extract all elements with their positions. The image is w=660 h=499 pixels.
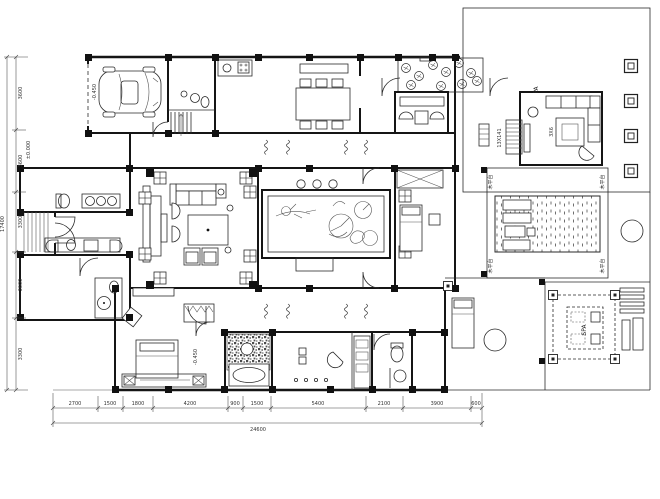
bench	[400, 97, 444, 106]
floor-plan-drawing: -0.450	[0, 0, 660, 499]
pedestal-sink	[241, 343, 253, 355]
spa-steps	[620, 288, 644, 350]
dimension-line-left: 3600 3600 3300 3600 3300 17400	[0, 55, 28, 392]
bedroom-bottom-left: -0.450	[122, 288, 214, 387]
dining-table	[296, 79, 350, 129]
spa-label: SPA	[581, 324, 588, 336]
sink	[394, 370, 406, 382]
dim-value: 1500	[251, 401, 264, 407]
garage-elevation: -0.450	[92, 84, 98, 100]
court-bench	[479, 124, 489, 146]
deck-label: 木平台	[487, 258, 494, 273]
car-icon	[99, 67, 161, 117]
bed-icon	[136, 340, 178, 378]
dim-total-bottom: 24600	[250, 427, 266, 433]
dresser	[133, 288, 174, 296]
central-courtyard	[244, 168, 395, 288]
bathroom-bottom-right	[374, 334, 406, 388]
dim-value: 3600	[18, 87, 24, 100]
dim-value: 1500	[104, 401, 117, 407]
round-chair	[430, 112, 444, 119]
dim-value: 2100	[378, 401, 391, 407]
living-room	[139, 172, 252, 284]
courtyard-door-bottom	[363, 272, 379, 288]
family-room-bottom	[294, 348, 343, 382]
lotus-pond	[262, 180, 390, 271]
dim-total-left: 17400	[0, 216, 6, 232]
dim-value: 4200	[184, 401, 197, 407]
branch-art	[276, 204, 316, 218]
dim-value: 5400	[312, 401, 325, 407]
dim-value: 1800	[132, 401, 145, 407]
dim-value: 3600	[18, 279, 24, 292]
daybed	[400, 205, 422, 251]
sofa-set	[170, 184, 233, 265]
powder-room-fixtures	[181, 91, 209, 108]
dim-value: 2700	[69, 401, 82, 407]
deck-label: 木平台	[599, 174, 606, 189]
wardrobe-tall	[354, 336, 370, 388]
tea-table	[415, 111, 428, 124]
wood-deck: 木平台 木平台 木平台 木平台	[481, 167, 643, 278]
stair-note: 13X141	[497, 128, 503, 147]
mosaic-bathroom	[227, 334, 270, 386]
entry-porch-steps	[24, 212, 48, 252]
lotus-art	[329, 201, 378, 245]
tree-icon	[621, 220, 643, 242]
rug-size-label: 3X6	[549, 127, 555, 137]
deck-label: 木平台	[487, 174, 494, 189]
stone-courtyard	[398, 57, 483, 92]
tree-icon	[484, 329, 506, 351]
pond-step	[296, 258, 333, 271]
double-entry-door	[55, 217, 75, 243]
entry-elevation: ±0.000	[26, 141, 32, 160]
dim-value: 3600	[18, 155, 24, 168]
bedroom-door-arc	[188, 306, 206, 324]
dining-room	[218, 57, 400, 133]
bed-icon-right	[452, 298, 474, 348]
dim-value: 3900	[431, 401, 444, 407]
spa-pavilion: SPA	[549, 288, 645, 364]
bath-elevation: -0.450	[193, 349, 199, 365]
dim-value: 3300	[18, 348, 24, 361]
planters-right-edge	[625, 60, 638, 178]
round-chair	[399, 112, 413, 119]
deck-label: 木平台	[599, 258, 606, 273]
pa-room-label: PA	[533, 85, 540, 93]
left-wing: ±0.000	[20, 141, 130, 320]
bird-art	[282, 207, 291, 216]
dim-value: 3300	[18, 216, 24, 229]
pa-room: PA 3X6 13X141	[479, 60, 638, 178]
bathroom-top-fixtures	[56, 194, 120, 208]
entry-stair-block	[153, 57, 215, 137]
bottom-band	[225, 332, 445, 390]
dim-value: 900	[230, 401, 240, 407]
garage: -0.450	[88, 57, 168, 126]
dim-value: 600	[471, 401, 481, 407]
vanity-row-fixtures	[45, 238, 122, 252]
dimension-line-bottom: 2700 1500 1800 4200 900 1500 5400 2100 3…	[51, 393, 484, 433]
slat-bridge: 13X141	[497, 120, 530, 154]
kitchen-counter	[218, 60, 252, 76]
courtyard-door-top	[363, 168, 379, 184]
floor-plan-canvas: -0.450	[0, 0, 660, 499]
corridor-door-arc	[382, 78, 400, 96]
opening-marks	[265, 140, 368, 318]
tea-room	[395, 92, 448, 133]
curved-chair	[327, 352, 343, 368]
pa-sofa-set: 3X6	[528, 96, 600, 160]
study-room	[397, 170, 443, 258]
sideboard	[300, 64, 348, 73]
court-door-arc	[490, 78, 508, 96]
